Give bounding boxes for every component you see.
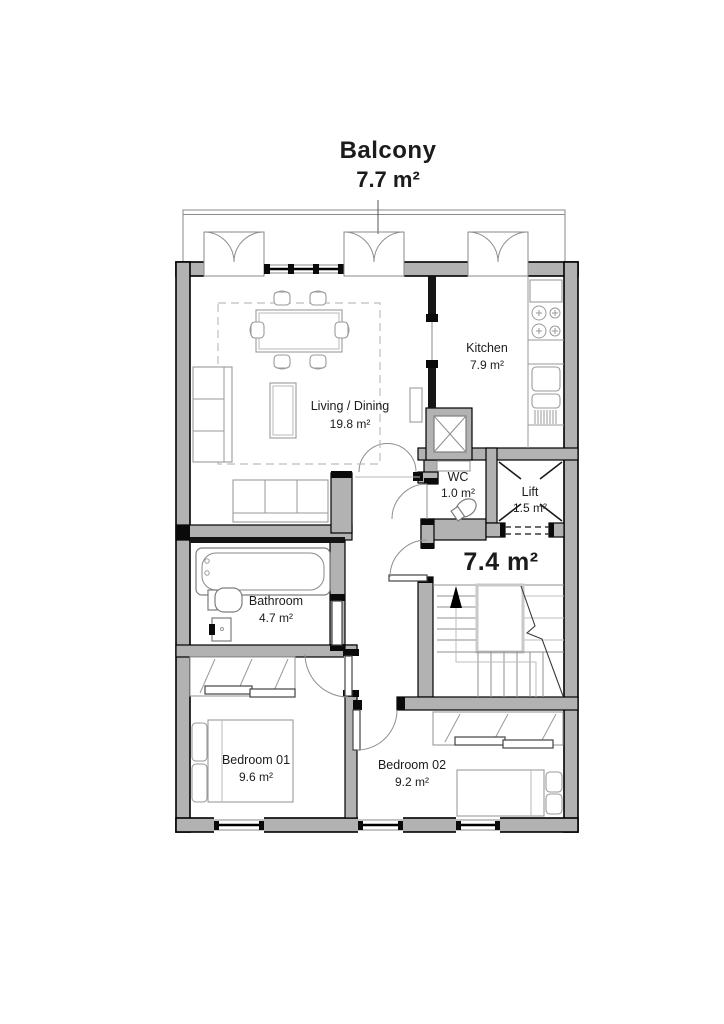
sofa-bottom: [233, 480, 328, 522]
hall-area: 7.4 m²: [463, 548, 538, 576]
sink-drainer: [535, 410, 556, 424]
tv-unit: [410, 388, 422, 422]
living-area: 19.8 m²: [330, 417, 371, 431]
bedroom2-furniture: [433, 712, 563, 816]
stove: [532, 306, 560, 338]
bathroom-toilet: [208, 588, 242, 612]
kitchen-fridge: [530, 280, 562, 302]
wc-label: WC: [448, 470, 469, 484]
living-label: Living / Dining: [311, 399, 390, 413]
lift-area: 1.5 m²: [513, 501, 547, 515]
kitchen-furniture: [528, 276, 564, 448]
bathroom-door: [332, 601, 342, 645]
floor-plan-drawing: Balcony 7.7 m² Living / Dining 19.8 m² K…: [0, 0, 724, 1024]
staircase: [433, 585, 564, 697]
balcony-area: 7.7 m²: [356, 167, 420, 192]
bathroom-area: 4.7 m²: [259, 611, 293, 625]
stair-up-arrow: [450, 586, 462, 608]
bathtub: [196, 548, 330, 595]
bedroom1-area: 9.6 m²: [239, 770, 273, 784]
bathroom-sink: [209, 618, 231, 641]
stair-break-line: [521, 586, 563, 696]
sofa-left: [193, 367, 232, 462]
wardrobe-bedroom2: [433, 712, 563, 748]
service-shaft: [434, 416, 466, 452]
bathroom-label: Bathroom: [249, 594, 303, 608]
bedroom2-area: 9.2 m²: [395, 775, 429, 789]
bedroom1-label: Bedroom 01: [222, 753, 290, 767]
bed-bedroom2: [457, 770, 562, 816]
kitchen-sink: [532, 367, 560, 424]
wc-door: [392, 484, 427, 519]
bedroom1-door: [305, 654, 352, 697]
dining-table: [256, 310, 342, 352]
bathroom-top-partition: [190, 537, 345, 543]
balcony-window-living: [264, 264, 344, 274]
living-entry-double-door: [355, 444, 420, 478]
lift-door-dashed: [505, 527, 549, 534]
kitchen-area: 7.9 m²: [470, 358, 504, 372]
coffee-table: [270, 383, 296, 438]
bedroom2-label: Bedroom 02: [378, 758, 446, 772]
wardrobe-bedroom1: [190, 657, 295, 697]
kitchen-label: Kitchen: [466, 341, 508, 355]
floor-plan-page: Balcony 7.7 m² Living / Dining 19.8 m² K…: [0, 0, 724, 1024]
lift-label: Lift: [522, 485, 539, 499]
bedroom2-door: [353, 710, 397, 750]
balcony-title: Balcony: [340, 137, 437, 164]
wc-area: 1.0 m²: [441, 486, 475, 500]
